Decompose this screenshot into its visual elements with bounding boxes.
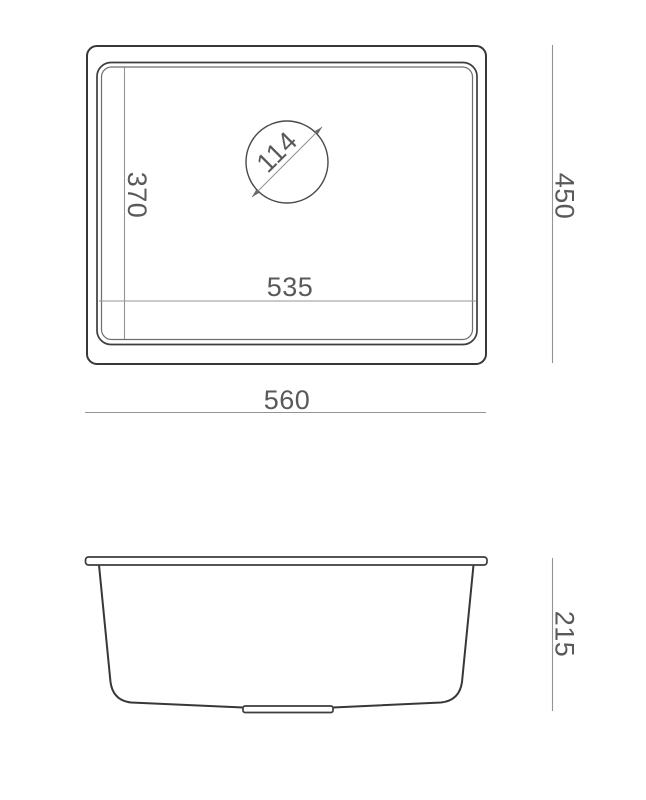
overall-width-dimension-label: 560: [264, 385, 311, 415]
sink-technical-drawing: 370 535 114 450 560: [0, 0, 646, 800]
drawing-canvas: 370 535 114 450 560: [0, 0, 646, 800]
bowl-depth-dimension-label: 370: [122, 172, 152, 219]
bowl-width-dimension-label: 535: [267, 272, 314, 302]
side-view-bowl-profile: [99, 565, 474, 708]
side-view-drain-fitting: [243, 706, 333, 713]
overall-depth-dimension-label: 450: [550, 173, 580, 220]
top-view: 370 535 114 450 560: [85, 45, 580, 415]
side-view-rim-flange: [86, 557, 488, 565]
side-depth-dimension-label: 215: [550, 611, 580, 658]
side-view: 215: [86, 557, 580, 713]
